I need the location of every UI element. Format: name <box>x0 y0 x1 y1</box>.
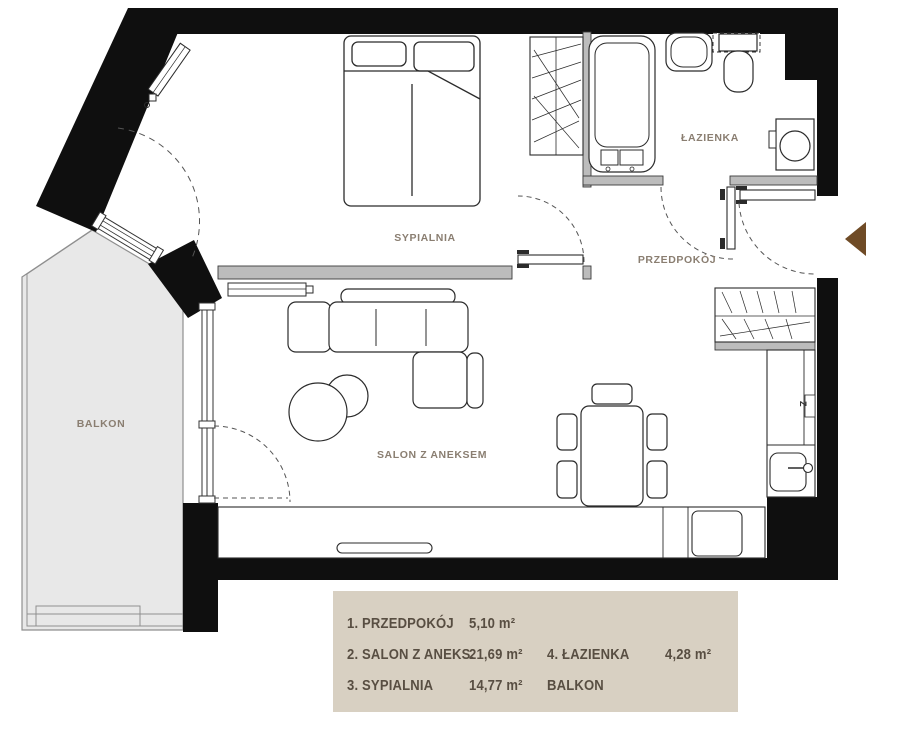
legend-room-4-area: 4,28 m² <box>665 647 730 663</box>
room-label-balkon: BALKON <box>77 418 126 430</box>
wall-wardrobe-base <box>715 342 815 350</box>
washing-machine <box>769 119 814 170</box>
hall-wardrobe <box>715 288 815 342</box>
chair <box>647 461 667 498</box>
bedroom-wardrobe <box>530 37 583 155</box>
salon-balcony-door-swing-arc <box>214 426 290 502</box>
chair <box>557 414 577 450</box>
legend-box: 1. PRZEDPOKÓJ 5,10 m² 2. SALON Z ANEKS. … <box>333 591 738 712</box>
room-label-salon: SALON Z ANEKSEM <box>377 449 487 461</box>
entrance-door-swing-arc <box>739 203 815 274</box>
entrance-arrow-icon <box>845 222 866 256</box>
bedroom-door <box>517 196 584 268</box>
window-post <box>199 496 215 503</box>
bottom-sideboard <box>218 507 765 558</box>
legend-room-1-name: 1. PRZEDPOKÓJ <box>347 616 457 632</box>
stove <box>692 511 742 556</box>
chair <box>557 461 577 498</box>
toilet <box>713 33 760 92</box>
wall-bathroom-south-left <box>583 176 663 185</box>
sofa-armrest <box>467 353 483 408</box>
kitchen-sink <box>770 453 806 491</box>
room-label-sypialnia: SYPIALNIA <box>394 232 455 244</box>
sofa-seat <box>329 302 468 352</box>
legend-room-4-name: 4. ŁAZIENKA <box>547 647 653 663</box>
chair <box>592 384 632 404</box>
legend-room-3-name: 3. SYPIALNIA <box>347 678 457 694</box>
pillow <box>414 42 474 71</box>
entrance-door <box>736 186 815 274</box>
bathtub-faucet <box>601 150 618 165</box>
wall-balcony-column <box>183 503 218 632</box>
chair <box>647 414 667 450</box>
wall-top <box>170 8 838 34</box>
tv <box>337 543 432 553</box>
toilet-bowl <box>724 51 753 92</box>
bathtub-faucet <box>620 150 643 165</box>
sofa-chaise <box>413 352 467 408</box>
legend-room-3-area: 14,77 m² <box>469 678 539 694</box>
wall-right-upper <box>817 34 838 196</box>
wall-bathroom-south-right <box>730 176 817 185</box>
legend-room-2-name: 2. SALON Z ANEKS. <box>347 647 457 663</box>
bed <box>344 36 480 206</box>
dining-set <box>557 384 667 506</box>
wall-bottom <box>183 558 838 580</box>
floorplan-page: Z SYPIALNIA ŁAZIENKA PRZEDP <box>0 0 902 735</box>
sofa-armrest <box>288 302 331 352</box>
bathroom-sink <box>666 33 712 71</box>
window-post <box>199 303 215 310</box>
salon-radiator <box>228 283 313 296</box>
bathtub <box>589 36 655 172</box>
dishwasher-mark: Z <box>798 401 808 407</box>
dining-table <box>581 406 643 506</box>
legend-balkon-name: BALKON <box>547 678 653 694</box>
legend-room-1-area: 5,10 m² <box>469 616 539 632</box>
legend-grid: 1. PRZEDPOKÓJ 5,10 m² 2. SALON Z ANEKS. … <box>347 608 738 701</box>
window-post <box>199 421 215 428</box>
salon-window <box>199 303 215 503</box>
room-label-lazienka: ŁAZIENKA <box>681 132 739 144</box>
wall-bedroom-salon <box>218 266 512 279</box>
wall-diagonal-nw <box>36 8 188 232</box>
room-label-przedpokoj: PRZEDPOKÓJ <box>638 253 716 266</box>
radiator-valve <box>149 94 156 101</box>
washer-door <box>769 131 776 148</box>
pillow <box>352 42 406 66</box>
coffee-tables <box>289 375 368 441</box>
kitchen-counter-right <box>767 350 815 497</box>
radiator-valve <box>306 286 313 293</box>
wall-bedroom-salon-stub <box>583 266 591 279</box>
bathroom-door <box>661 187 735 259</box>
legend-room-2-area: 21,69 m² <box>469 647 539 663</box>
